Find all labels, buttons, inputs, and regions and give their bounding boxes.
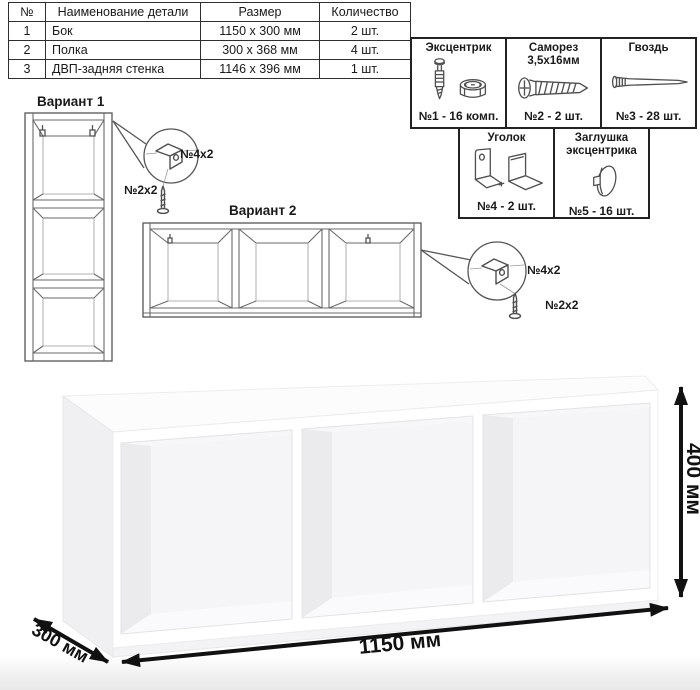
corner-bracket-icon bbox=[156, 144, 182, 169]
table-row: 2 Полка 300 x 368 мм 4 шт. bbox=[9, 41, 411, 60]
hardware-title: Саморез3,5х16мм bbox=[527, 42, 579, 68]
part-number: 1 bbox=[9, 22, 46, 41]
variant-1-bracket-qty-label: №4х2 bbox=[180, 147, 213, 161]
hardware-count: №3 - 28 шт. bbox=[616, 109, 682, 123]
part-qty: 2 шт. bbox=[320, 22, 411, 41]
part-name: ДВП-задняя стенка bbox=[46, 60, 201, 79]
col-part-name: Наименование детали bbox=[46, 3, 201, 22]
assembly-instruction-sheet: № Наименование детали Размер Количество … bbox=[0, 0, 700, 690]
part-size: 1150 x 300 мм bbox=[201, 22, 320, 41]
table-row: 3 ДВП-задняя стенка 1146 x 396 мм 1 шт. bbox=[9, 60, 411, 79]
hardware-box-row1: Эксцентрик №1 - 16 bbox=[410, 37, 697, 129]
hardware-item-bracket: Уголок №4 - 2 шт. bbox=[458, 127, 555, 219]
table-row: 1 Бок 1150 x 300 мм 2 шт. bbox=[9, 22, 411, 41]
part-size: 300 x 368 мм bbox=[201, 41, 320, 60]
parts-table: № Наименование детали Размер Количество … bbox=[8, 2, 411, 79]
hardware-item-eccentric: Эксцентрик №1 - 16 bbox=[410, 37, 507, 129]
hardware-title: Гвоздь bbox=[628, 42, 668, 55]
part-name: Полка bbox=[46, 41, 201, 60]
col-quantity: Количество bbox=[320, 3, 411, 22]
compartment bbox=[483, 403, 650, 602]
hardware-item-screw: Саморез3,5х16мм №2 - 2 шт. bbox=[505, 37, 602, 129]
corner-bracket-icon bbox=[482, 259, 508, 284]
hardware-item-cap: Заглушкаэксцентрика №5 - 16 шт. bbox=[553, 127, 650, 219]
eccentric-icon bbox=[416, 55, 502, 109]
part-qty: 1 шт. bbox=[320, 60, 411, 79]
parts-table-header-row: № Наименование детали Размер Количество bbox=[9, 3, 411, 22]
part-name: Бок bbox=[46, 22, 201, 41]
compartment bbox=[121, 430, 292, 634]
hardware-title: Заглушкаэксцентрика bbox=[566, 132, 637, 158]
part-size: 1146 x 396 мм bbox=[201, 60, 320, 79]
screw-icon bbox=[513, 68, 595, 109]
col-number: № bbox=[9, 3, 46, 22]
variant-2-bracket-qty-label: №4х2 bbox=[527, 263, 560, 277]
hardware-item-nail: Гвоздь №3 - 28 шт. bbox=[600, 37, 697, 129]
eccentric-cap-icon bbox=[572, 158, 632, 204]
part-number: 3 bbox=[9, 60, 46, 79]
corner-bracket-icon bbox=[464, 145, 550, 199]
variant-2-screw-qty-label: №2х2 bbox=[545, 298, 578, 312]
nail-icon bbox=[608, 55, 690, 109]
hardware-title: Уголок bbox=[487, 132, 525, 145]
hardware-count: №2 - 2 шт. bbox=[524, 109, 583, 123]
variant-1-label: Вариант 1 bbox=[37, 94, 104, 109]
variant-1-screw-qty-label: №2х2 bbox=[124, 183, 157, 197]
hardware-count: №1 - 16 комп. bbox=[419, 109, 499, 123]
part-number: 2 bbox=[9, 41, 46, 60]
col-size: Размер bbox=[201, 3, 320, 22]
height-dimension-label: 400 мм bbox=[681, 443, 700, 515]
hardware-box-row2: Уголок №4 - 2 шт. Заглушкаэксцентрика bbox=[458, 127, 650, 219]
compartment bbox=[302, 416, 473, 618]
hardware-title: Эксцентрик bbox=[425, 42, 491, 55]
part-qty: 4 шт. bbox=[320, 41, 411, 60]
